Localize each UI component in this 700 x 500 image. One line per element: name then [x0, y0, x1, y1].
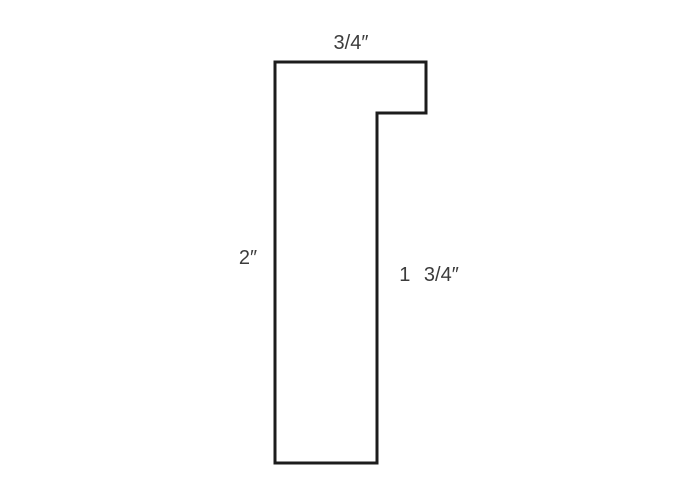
profile-shape-svg	[0, 0, 700, 500]
diagram-canvas: 3/4″ 2″ 1 3/4″	[0, 0, 700, 500]
profile-outline	[275, 62, 426, 463]
top-width-dimension-label: 3/4″	[334, 33, 369, 53]
right-height-dimension-label: 1 3/4″	[399, 265, 459, 285]
left-height-dimension-label: 2″	[239, 248, 257, 268]
